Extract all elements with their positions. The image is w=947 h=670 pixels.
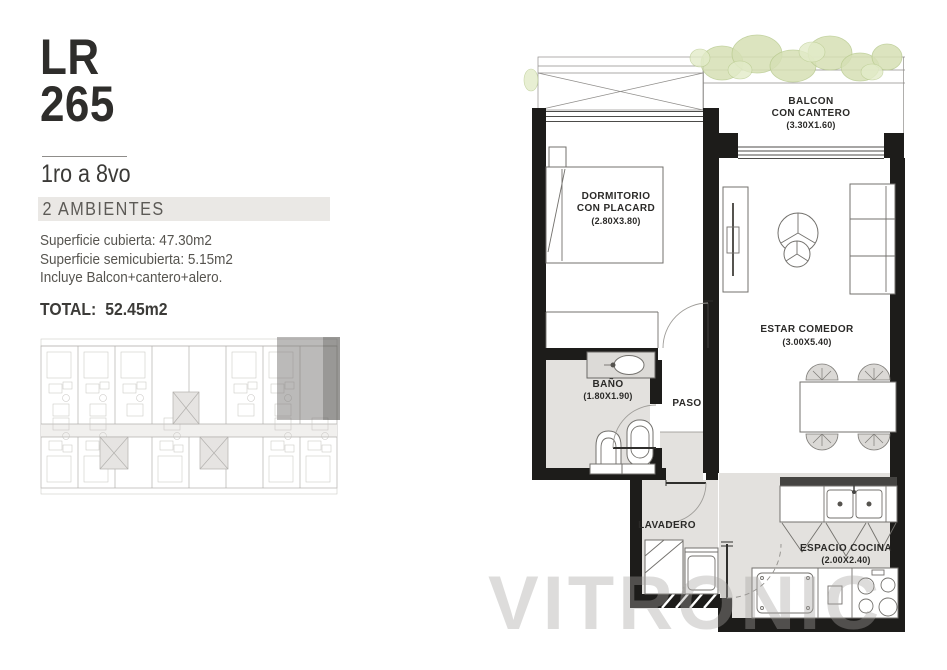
washing-machine	[645, 540, 683, 594]
placard-closet	[546, 312, 658, 348]
dormitorio-dims: (2.80X3.80)	[591, 216, 640, 226]
laundry-appliance	[685, 548, 718, 594]
balcon-label2: CON CANTERO	[772, 108, 851, 119]
floor-plan: BALCON CON CANTERO (3.30X1.60) DORMITORI…	[0, 0, 947, 670]
lavadero-label: LAVADERO	[638, 520, 696, 531]
sofa	[850, 184, 895, 294]
alero-overhang	[538, 57, 703, 110]
kitchen-upper-cabinet	[780, 477, 897, 486]
cocina-label: ESPACIO COCINA	[800, 543, 892, 554]
balcon-label: BALCON	[788, 96, 833, 107]
floorplan-sheet: LR265 1ro a 8vo 2 AMBIENTES Superficie c…	[0, 0, 947, 670]
bano-label: BAÑO	[592, 377, 623, 390]
bathroom-vanity	[587, 352, 655, 378]
dormitorio-label: DORMITORIO	[582, 191, 651, 202]
tv-console	[723, 187, 748, 292]
coffee-tables	[778, 213, 818, 267]
dining-set	[800, 364, 896, 450]
dormitorio-label2: CON PLACARD	[577, 203, 655, 214]
kitchen-lower-counter	[752, 568, 898, 618]
cocina-dims: (2.00X2.40)	[821, 555, 870, 565]
estar-dims: (3.00X5.40)	[782, 337, 831, 347]
balcony-sliding-door	[738, 147, 884, 159]
bedroom-window	[546, 112, 703, 122]
bano-dims: (1.80X1.90)	[583, 391, 632, 401]
balcon-dims: (3.30X1.60)	[786, 120, 835, 130]
estar-label: ESTAR COMEDOR	[760, 324, 854, 335]
paso-label: PASO	[672, 398, 701, 409]
